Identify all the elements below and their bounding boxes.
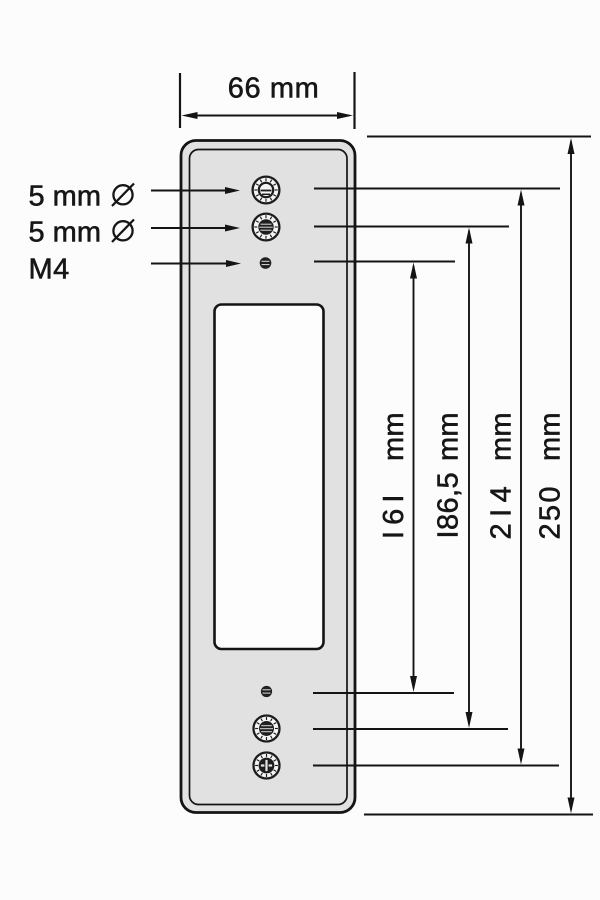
svg-text:mm: mm [486, 412, 518, 461]
svg-text:5 mm: 5 mm [29, 181, 102, 213]
svg-text:I6I: I6I [378, 488, 410, 539]
svg-text:5 mm: 5 mm [29, 217, 102, 249]
svg-text:2I4: 2I4 [486, 480, 518, 540]
svg-text:66 mm: 66 mm [228, 73, 320, 105]
svg-text:250: 250 [535, 484, 567, 539]
svg-text:M4: M4 [29, 254, 70, 286]
svg-text:mm: mm [535, 412, 567, 461]
svg-text:mm: mm [378, 412, 410, 461]
svg-text:I86,5: I86,5 [433, 472, 465, 539]
svg-text:mm: mm [433, 412, 465, 461]
